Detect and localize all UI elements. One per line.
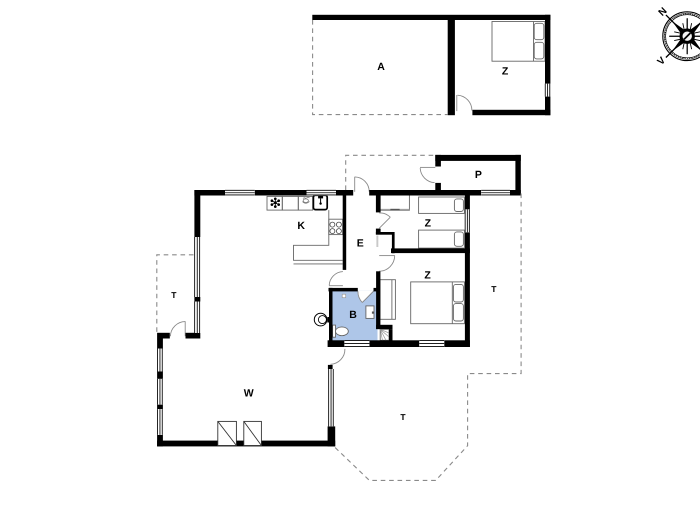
svg-text:K: K [297, 220, 305, 232]
svg-text:T: T [400, 412, 406, 422]
svg-text:Z: Z [424, 269, 431, 281]
svg-text:Z: Z [502, 66, 509, 78]
svg-text:B: B [349, 309, 357, 321]
svg-text:Z: Z [425, 218, 432, 230]
svg-text:A: A [377, 61, 385, 73]
svg-text:P: P [475, 169, 482, 181]
svg-text:T: T [491, 284, 497, 294]
svg-text:T: T [171, 290, 177, 300]
svg-text:W: W [244, 387, 254, 399]
svg-text:E: E [357, 238, 364, 250]
